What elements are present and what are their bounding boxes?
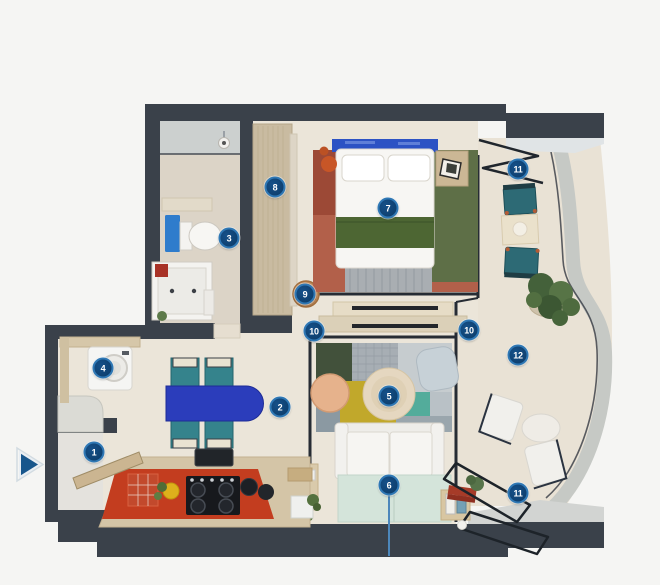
hotspot-marker-12[interactable]: 12 — [508, 345, 529, 366]
balcony-chair — [503, 183, 537, 215]
hotspot-marker-2[interactable]: 2 — [270, 397, 291, 418]
stove — [186, 476, 240, 515]
play-triangle-icon — [12, 444, 48, 484]
sofa — [335, 423, 451, 522]
hotspot-marker-8[interactable]: 8 — [265, 177, 286, 198]
floor-plan-stage: 1 2 3 4 5 6 7 8 9 10 10 11 11 12 — [0, 0, 660, 585]
hotspot-marker-6[interactable]: 6 — [379, 475, 400, 496]
hotspot-marker-9[interactable]: 9 — [295, 284, 316, 305]
floor-plan-rendering — [0, 0, 660, 585]
red-towel — [155, 264, 168, 277]
bedside-lamp-small — [320, 147, 329, 156]
dining-table — [166, 386, 264, 421]
hotspot-marker-11-a[interactable]: 11 — [508, 159, 529, 180]
pillow — [388, 155, 430, 181]
pouf — [311, 374, 349, 412]
tv-living — [352, 324, 438, 328]
hotspot-marker-10-b[interactable]: 10 — [459, 320, 480, 341]
terrace-lantern — [458, 521, 467, 530]
kitchen-sink — [195, 449, 233, 466]
toilet-cistern-panel — [165, 215, 180, 252]
dining-chair — [205, 358, 233, 386]
vegetables — [157, 482, 167, 492]
bathroom-plant — [157, 311, 167, 321]
hotspot-marker-5[interactable]: 5 — [379, 386, 400, 407]
tv-bedroom — [352, 306, 438, 310]
play-button[interactable] — [12, 444, 48, 484]
dining-chair — [171, 358, 199, 386]
bathroom-door — [214, 324, 240, 338]
balcony-chair — [504, 247, 540, 279]
balcony-dining-set — [501, 183, 539, 279]
bathroom-vanity — [152, 262, 214, 321]
pot — [258, 484, 274, 500]
hotspot-marker-7[interactable]: 7 — [378, 198, 399, 219]
shower-floor — [160, 121, 240, 154]
dining-chair — [171, 420, 199, 448]
balcony-table — [501, 214, 538, 245]
nightstand — [436, 151, 468, 186]
cutting-board — [288, 468, 312, 481]
dining-chair — [205, 420, 233, 448]
tv-console — [319, 302, 467, 332]
red-crate — [128, 474, 158, 506]
hotspot-marker-10-a[interactable]: 10 — [304, 321, 325, 342]
wardrobe-sliding-door — [290, 134, 297, 306]
pot — [241, 479, 258, 496]
wardrobe — [253, 124, 297, 315]
hotspot-marker-4[interactable]: 4 — [93, 358, 114, 379]
hotspot-marker-1[interactable]: 1 — [84, 442, 105, 463]
bathroom-half-wall — [162, 198, 212, 211]
terrace-table — [522, 414, 560, 442]
hotspot-marker-11-b[interactable]: 11 — [508, 483, 529, 504]
pillow — [342, 155, 384, 181]
armchair — [415, 345, 461, 393]
hotspot-marker-3[interactable]: 3 — [219, 228, 240, 249]
bedside-lamp — [321, 156, 337, 172]
hand-towel — [204, 290, 214, 315]
